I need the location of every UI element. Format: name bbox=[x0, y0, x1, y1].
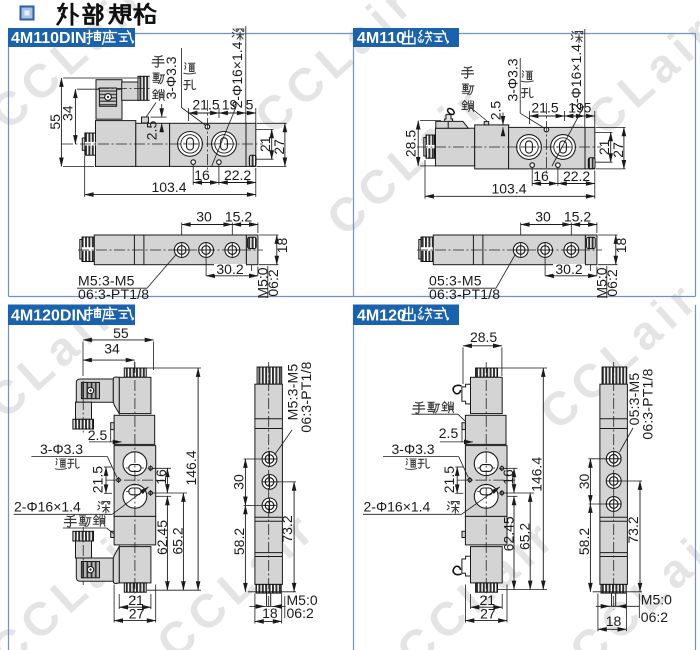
svg-text:30: 30 bbox=[576, 474, 592, 490]
svg-text:30.2: 30.2 bbox=[216, 261, 243, 277]
svg-text:16: 16 bbox=[500, 469, 516, 485]
svg-text:22.2: 22.2 bbox=[563, 168, 590, 184]
svg-text:18: 18 bbox=[613, 238, 629, 254]
svg-text:M5:0: M5:0 bbox=[641, 592, 672, 608]
svg-text:2.5: 2.5 bbox=[439, 425, 459, 441]
svg-text:2-Φ16×1.4: 2-Φ16×1.4 bbox=[568, 44, 584, 111]
svg-text:2.5: 2.5 bbox=[488, 101, 504, 121]
svg-text:21.5: 21.5 bbox=[531, 100, 558, 116]
svg-text:2.5: 2.5 bbox=[88, 427, 108, 443]
svg-text:28.5: 28.5 bbox=[470, 329, 497, 345]
svg-text:65.2: 65.2 bbox=[170, 527, 186, 554]
svg-text:21.5: 21.5 bbox=[90, 466, 106, 493]
svg-text:3-Φ3.3: 3-Φ3.3 bbox=[504, 58, 520, 101]
svg-text:27: 27 bbox=[129, 605, 145, 621]
svg-text:3-Φ3.3: 3-Φ3.3 bbox=[40, 441, 83, 457]
svg-text:16: 16 bbox=[153, 469, 169, 485]
svg-text:4M110: 4M110 bbox=[357, 30, 405, 47]
svg-text:27: 27 bbox=[480, 605, 496, 621]
svg-text:62.45: 62.45 bbox=[501, 516, 517, 551]
svg-text:103.4: 103.4 bbox=[491, 180, 526, 196]
svg-text:16: 16 bbox=[533, 168, 549, 184]
svg-text:4M120DIN: 4M120DIN bbox=[11, 308, 87, 325]
svg-text:62.45: 62.45 bbox=[154, 520, 170, 555]
svg-text:21.5: 21.5 bbox=[192, 97, 219, 113]
svg-text:22.2: 22.2 bbox=[224, 167, 251, 183]
svg-text:30: 30 bbox=[231, 474, 247, 490]
svg-text:06:3-PT1/8: 06:3-PT1/8 bbox=[298, 361, 314, 432]
svg-text:2-Φ16×1.4: 2-Φ16×1.4 bbox=[364, 499, 431, 515]
svg-text:2-Φ16×1.4: 2-Φ16×1.4 bbox=[229, 41, 245, 108]
svg-text:27: 27 bbox=[610, 142, 626, 158]
svg-text:34: 34 bbox=[59, 105, 75, 121]
svg-text:146.4: 146.4 bbox=[529, 457, 545, 492]
svg-text:73.2: 73.2 bbox=[279, 515, 295, 542]
svg-text:73.2: 73.2 bbox=[625, 516, 641, 543]
svg-text:4M120: 4M120 bbox=[357, 308, 406, 325]
svg-text:3-Φ3.3: 3-Φ3.3 bbox=[392, 441, 435, 457]
svg-text:06:2: 06:2 bbox=[641, 609, 668, 625]
svg-text:58.2: 58.2 bbox=[231, 528, 247, 555]
svg-text:18: 18 bbox=[274, 238, 290, 254]
svg-text:06:2: 06:2 bbox=[287, 605, 314, 621]
svg-text:65.2: 65.2 bbox=[516, 523, 532, 550]
svg-text:34: 34 bbox=[104, 340, 120, 356]
svg-text:4M110DIN: 4M110DIN bbox=[11, 30, 87, 47]
svg-text:16: 16 bbox=[194, 167, 210, 183]
svg-text:2.5: 2.5 bbox=[144, 121, 160, 141]
svg-text:146.4: 146.4 bbox=[183, 450, 199, 485]
svg-text:15.2: 15.2 bbox=[225, 209, 252, 225]
svg-text:2-Φ16×1.4: 2-Φ16×1.4 bbox=[14, 499, 81, 515]
svg-text:06:2: 06:2 bbox=[604, 269, 620, 296]
svg-text:58.2: 58.2 bbox=[576, 528, 592, 555]
svg-text:30: 30 bbox=[196, 209, 212, 225]
svg-text:30.2: 30.2 bbox=[555, 261, 582, 277]
svg-text:5: 5 bbox=[246, 97, 254, 113]
svg-text:18: 18 bbox=[606, 613, 622, 629]
svg-text:21.5: 21.5 bbox=[441, 466, 457, 493]
svg-text:06:2: 06:2 bbox=[265, 269, 281, 296]
svg-text:3-Φ3.3: 3-Φ3.3 bbox=[163, 56, 179, 99]
svg-text:55: 55 bbox=[113, 325, 129, 341]
svg-text:06:3-PT1/8: 06:3-PT1/8 bbox=[639, 368, 655, 439]
svg-text:15.2: 15.2 bbox=[564, 209, 591, 225]
svg-text:18: 18 bbox=[262, 605, 278, 621]
svg-text:30: 30 bbox=[535, 209, 551, 225]
svg-text:5: 5 bbox=[584, 100, 592, 116]
svg-text:28.5: 28.5 bbox=[403, 130, 419, 157]
svg-text:103.4: 103.4 bbox=[151, 179, 186, 195]
svg-text:27: 27 bbox=[271, 139, 287, 155]
